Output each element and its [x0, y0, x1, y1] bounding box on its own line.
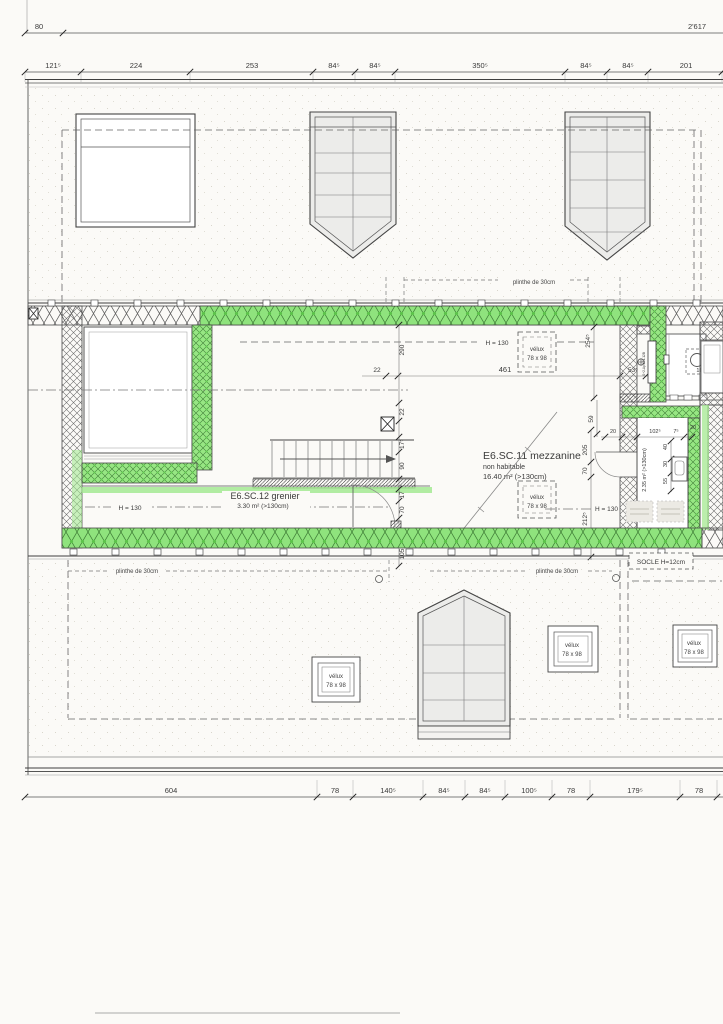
velux-box-mid: vélux 78 x 98: [518, 481, 556, 518]
duct-ref-label: S+2-Ap-171-12B: [642, 352, 646, 376]
velux-a-name: vélux: [329, 674, 343, 680]
cabinet-area-label: 2.35 m² (>130cm): [642, 448, 648, 492]
highlighted-wall-top: [200, 306, 662, 325]
dim-top-2: 253: [246, 61, 259, 70]
dim-bottom-4: 84⁵: [479, 786, 490, 795]
stair-sill: [253, 479, 415, 488]
dim-top-7: 84⁵: [622, 61, 633, 70]
cabinet-room: 20 102⁵ 7⁵ 20 40 30 55 2.35 m² (>130cm): [601, 418, 696, 530]
dim-top-3: 84⁵: [328, 61, 339, 70]
grenier-room-area: 3.30 m² (>130cm): [237, 503, 288, 510]
upper-roof-edge: [25, 80, 723, 88]
grenier-height-label: H = 130: [119, 505, 142, 512]
socle-label: SOCLE H=12cm: [637, 559, 685, 566]
dim-bottom-7: 179⁵: [627, 786, 643, 795]
dim-bottom-1: 78: [331, 786, 339, 795]
duct-shaft: S+2-Ap-171-12B: [638, 341, 656, 383]
dim-bottom-8: 78: [695, 786, 703, 795]
grenier-labels: H = 130 E6.SC.12 grenier 3.30 m² (>130cm…: [85, 491, 390, 512]
dim-c7: 7⁵: [673, 428, 678, 435]
dim-bottom-0: 604: [165, 786, 178, 795]
highlighted-wall-bottom: [62, 528, 702, 548]
velux-b-size: 78 x 98: [562, 652, 582, 658]
dim-h461: 461: [499, 365, 512, 374]
dim-bottom-3: 84⁵: [438, 786, 449, 795]
dim-top-8: 201: [680, 61, 693, 70]
mezzanine-door: [595, 452, 620, 477]
dim-v212: 212⁵: [582, 512, 589, 526]
velux-b-name: vélux: [565, 643, 579, 649]
dim-v205: 205: [582, 444, 589, 455]
dim-c40: 40: [663, 444, 669, 450]
dim-overall-total: 2'617: [688, 22, 706, 31]
dim-v70: 70: [399, 506, 406, 514]
dim-bottom-2: 140⁵: [380, 786, 396, 795]
highlighted-wall-grenier: [192, 325, 212, 470]
flat-skylight: [76, 114, 195, 227]
dim-v17a: 17⁵: [399, 439, 406, 449]
velux-window-bottom-right: vélux 78 x 98: [673, 625, 717, 667]
mezzanine-room-note: non habitable: [483, 464, 525, 471]
velux-upper-name: vélux: [530, 347, 544, 353]
mezzanine-labels: E6.SC.11 mezzanine non habitable 16.40 m…: [483, 450, 581, 481]
floor-plan-page: 80 2'617 121⁵ 224 253 84⁵ 84⁵ 350⁵ 84⁵ 8…: [0, 0, 723, 1024]
velux-box-upper: vélux 78 x 98: [518, 332, 556, 372]
dim-c20a: 20: [610, 429, 616, 435]
dim-top-6: 84⁵: [580, 61, 591, 70]
dim-h22: 22: [373, 367, 381, 374]
dim-c20b: 20: [690, 425, 696, 431]
dim-offset-80: 80: [35, 22, 43, 31]
grenier-storage-room: [82, 325, 212, 483]
velux-mid-size: 78 x 98: [527, 504, 547, 510]
dim-c102: 102⁵: [649, 428, 660, 435]
dim-v105: 105: [399, 548, 406, 559]
dim-top-0: 121⁵: [45, 61, 61, 70]
dim-bottom-5: 100⁵: [521, 786, 537, 795]
velux-c-size: 78 x 98: [684, 650, 704, 656]
dim-v17b: 17: [399, 491, 406, 499]
lower-roof-edge: [25, 757, 723, 775]
velux-a-size: 78 x 98: [326, 683, 346, 689]
velux-window-bottom-left: vélux 78 x 98: [312, 657, 360, 702]
dim-v70b: 70: [582, 467, 589, 475]
top-dimension-lines: 80 2'617 121⁵ 224 253 84⁵ 84⁵ 350⁵ 84⁵ 8…: [22, 22, 723, 82]
dormer-window-bottom: [418, 590, 510, 739]
top-wall-band: [28, 300, 723, 325]
dim-bottom-6: 78: [567, 786, 575, 795]
socle-note: SOCLE H=12cm: [629, 553, 693, 569]
grenier-room-name: E6.SC.12 grenier: [230, 491, 299, 501]
dim-v290: 290: [399, 344, 406, 355]
bottom-wall-band: [28, 528, 723, 559]
mezzanine-height-label-bottom: H = 130: [595, 506, 618, 513]
dim-v90: 90: [399, 462, 406, 470]
dim-chains-right: 254⁵ 59 205 70 212⁵: [582, 324, 600, 560]
rafter-posts-bottom: [70, 549, 665, 555]
dim-v59: 59: [588, 415, 595, 423]
floor-plan-drawing: 80 2'617 121⁵ 224 253 84⁵ 84⁵ 350⁵ 84⁵ 8…: [0, 0, 723, 1024]
plinthe-label-right: plinthe de 30cm: [536, 569, 578, 575]
velux-mid-name: vélux: [530, 495, 544, 501]
dim-top-4: 84⁵: [369, 61, 380, 70]
dim-c55: 55: [663, 478, 669, 484]
plinthe-label-left: plinthe de 30cm: [116, 569, 158, 575]
dim-c30: 30: [663, 461, 669, 467]
dim-top-5: 350⁵: [472, 61, 488, 70]
plinthe-label-top: plinthe de 30cm: [513, 280, 555, 286]
bottom-dimension-line: 604 78 140⁵ 84⁵ 84⁵ 100⁵ 78 179⁵ 78: [22, 780, 723, 800]
dim-v254: 254⁵: [585, 334, 592, 348]
mezzanine-room-name: E6.SC.11 mezzanine: [483, 450, 581, 462]
socket-symbol: [664, 355, 669, 364]
sink-fixture: [672, 457, 687, 481]
mezzanine-room-area: 16.40 m² (>130cm): [483, 472, 547, 481]
far-right-walls: [700, 322, 723, 530]
mezzanine-height-label-top: H = 130: [486, 340, 509, 347]
dim-top-1: 224: [130, 61, 143, 70]
dim-v22: 22: [399, 408, 406, 416]
velux-c-name: vélux: [687, 641, 701, 647]
velux-upper-size: 78 x 98: [527, 356, 547, 362]
velux-window-bottom-mid: vélux 78 x 98: [548, 626, 598, 672]
staircase: [253, 417, 415, 488]
